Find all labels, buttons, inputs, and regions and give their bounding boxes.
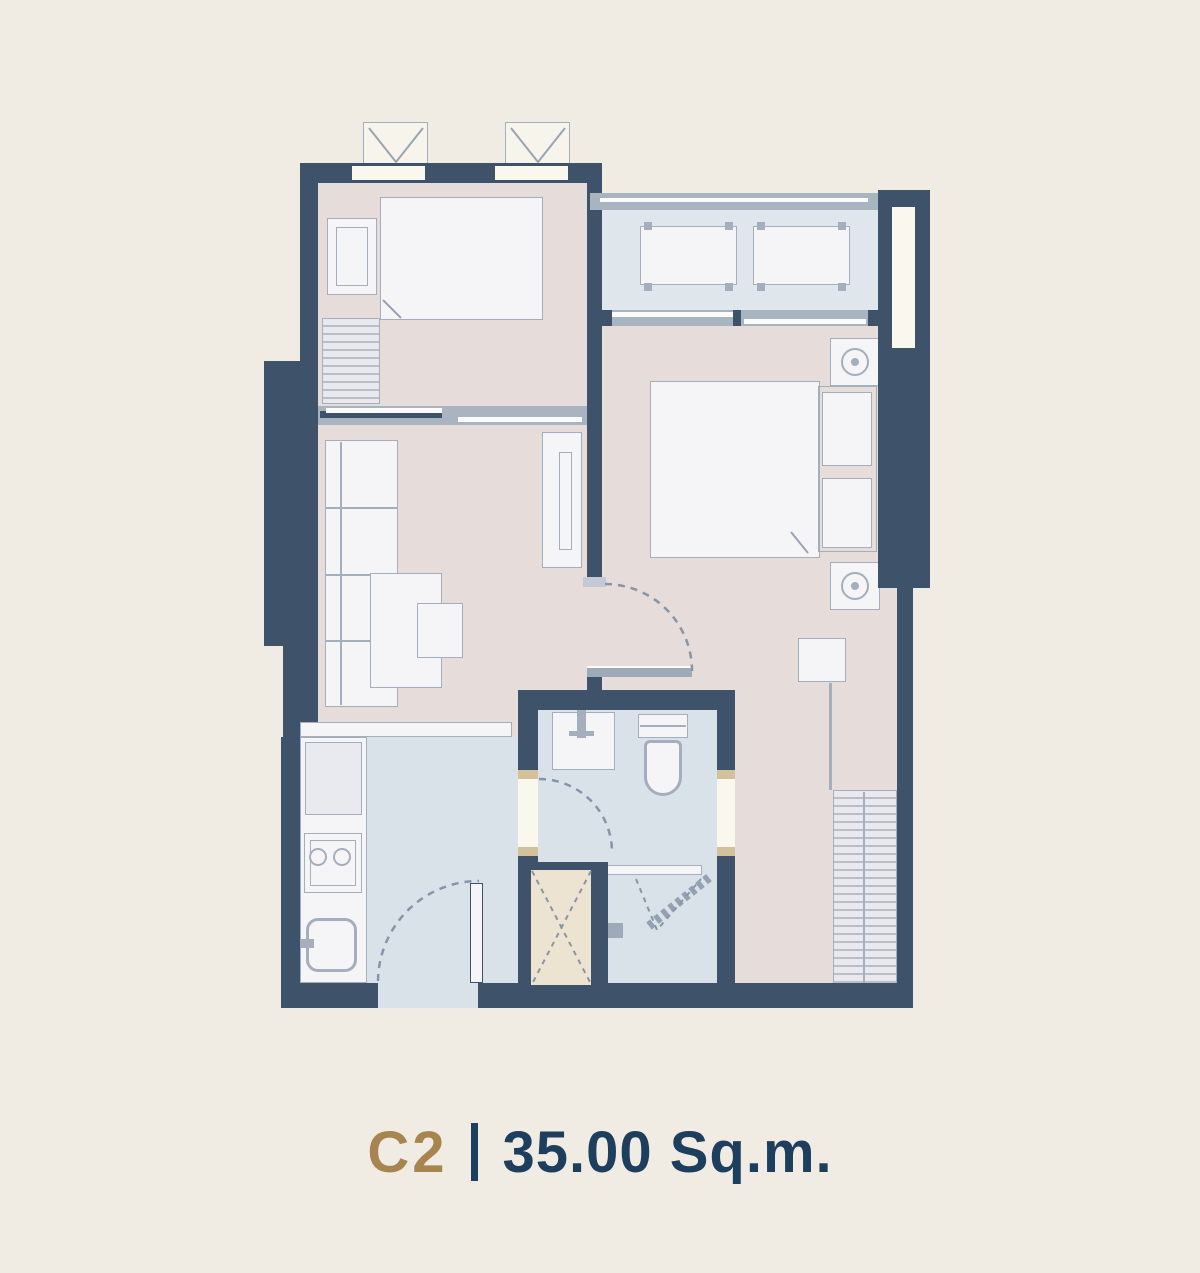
floorplan-page: { "unit_label": { "code": "C2", "separat… (0, 0, 1200, 1273)
wall-left-pillar (264, 361, 300, 646)
balcony-ac-unit-1 (640, 226, 737, 285)
bathroom-master-jamb-bottom (717, 847, 735, 856)
master-bed (650, 381, 820, 558)
ac1-foot-bl (644, 283, 652, 291)
balcony-railing-line (600, 198, 868, 202)
title-separator-bar (471, 1123, 478, 1181)
bedroom2-dresser (322, 318, 380, 404)
basin-faucet-bar (569, 731, 594, 736)
wall-bathroom-right-lower (717, 847, 735, 993)
unit-code-label: C2 (367, 1119, 447, 1186)
balcony-slider-panel-left (612, 312, 734, 317)
stool (798, 638, 846, 682)
wall-bathroom-right-upper (717, 690, 735, 777)
wardrobe (833, 790, 897, 985)
entrance-threshold (378, 983, 478, 1008)
sofa-seam-1 (326, 507, 397, 509)
wall-right-lower (897, 588, 913, 1008)
kitchen-threshold (300, 722, 512, 737)
unit-area-label: 35.00 Sq.m. (502, 1119, 832, 1186)
shower-glass-panel (605, 865, 702, 875)
wall-bathroom-left-upper (518, 690, 538, 777)
bedroom2-window-2 (495, 166, 568, 180)
bedroom2-bed (380, 197, 543, 320)
bedroom2-slider-panel-left (326, 408, 442, 413)
wall-kitchen-left (281, 737, 300, 1008)
pillow-top (822, 392, 872, 466)
bedroom2-window-1 (352, 166, 425, 180)
balcony-slider-panel-right (744, 319, 866, 324)
bathroom-hall-jamb-top (518, 770, 538, 779)
unit-title: C2 35.00 Sq.m. (0, 1112, 1200, 1192)
balcony-slider-nub-center (733, 310, 741, 326)
ac2-foot-br (838, 283, 846, 291)
shower-door-strike (608, 923, 623, 938)
service-shaft-box (523, 862, 599, 993)
wall-bottom-west (281, 983, 378, 1008)
pillow-bottom (822, 478, 872, 548)
bedroom2-side-table-inner (336, 227, 368, 286)
wall-center-divider (587, 180, 602, 578)
wall-shaft-east (592, 862, 608, 993)
balcony-slider-nub-right (868, 310, 878, 326)
ac2-foot-bl (757, 283, 765, 291)
ac2-foot-tr (838, 222, 846, 230)
toilet-bowl (644, 740, 682, 796)
fridge (305, 742, 362, 815)
tv-screen (559, 452, 572, 550)
wardrobe-side-panel (829, 683, 832, 790)
stove-inner-frame (310, 840, 356, 886)
bedside-lamp-top-dot (851, 358, 859, 366)
wall-left-lower-jog (283, 646, 300, 737)
wall-left-upper (300, 163, 318, 737)
ac1-foot-tl (644, 222, 652, 230)
wall-bathroom-top (523, 690, 735, 710)
coffee-table-tray (417, 603, 463, 658)
toilet-tank-line (640, 725, 686, 727)
balcony-slider-nub-left (602, 310, 612, 326)
bedroom2-slider-panel-right (458, 417, 582, 422)
right-pillar-window (892, 207, 915, 348)
ac-condenser-box-1 (363, 122, 428, 168)
bathroom-master-jamb-top (717, 770, 735, 779)
entrance-door-leaf (470, 883, 483, 983)
master-door-opening-floor (587, 578, 602, 667)
wardrobe-rod (863, 792, 865, 983)
ac1-foot-br (725, 283, 733, 291)
bathroom-door-gap-hall (518, 779, 538, 847)
bedside-lamp-bottom-dot (851, 582, 859, 590)
bathroom-hall-jamb-bottom (518, 847, 538, 856)
balcony-ac-unit-2 (753, 226, 850, 285)
master-door-leaf (587, 666, 692, 677)
master-door-jamb-cap (583, 577, 606, 587)
ac1-foot-tr (725, 222, 733, 230)
ac-condenser-box-2 (505, 122, 570, 168)
bathroom-door-gap-master (717, 779, 735, 847)
ac2-foot-tl (757, 222, 765, 230)
